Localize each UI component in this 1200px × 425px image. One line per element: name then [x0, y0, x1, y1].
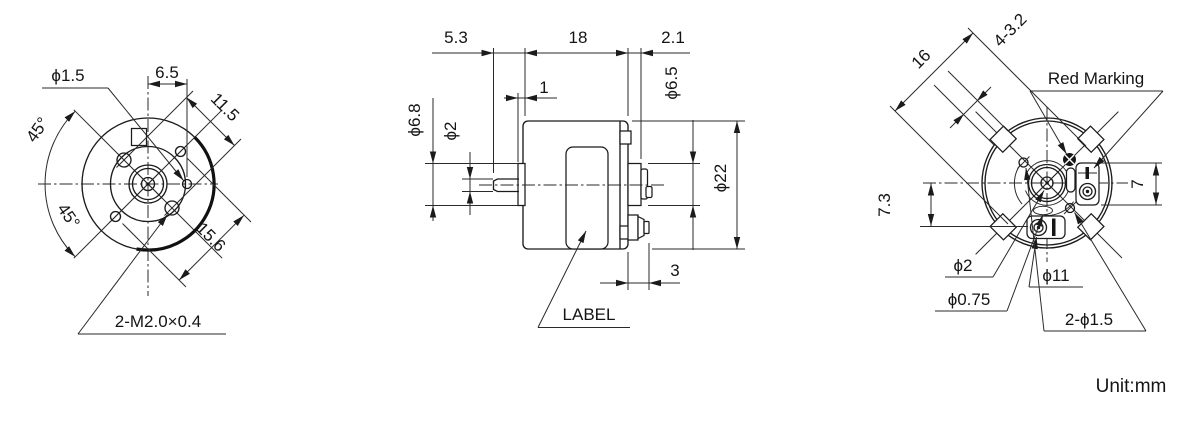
front-hole-dia-label: ϕ1.5 — [51, 66, 84, 85]
side-terminal-length-label: 3 — [670, 261, 679, 280]
motor-outline-drawing: ϕ1.5 6.5 11.5 45° 45° 15.6 2-M2.0×0.4 — [0, 0, 1200, 425]
label-band — [566, 147, 608, 249]
side-shaft-dia-label: ϕ2 — [441, 122, 460, 141]
side-label-note: LABEL — [563, 305, 616, 324]
vent-oval — [1067, 168, 1076, 192]
red-marking-dot — [1063, 153, 1076, 166]
rear-pinhole-dia-label: ϕ0.75 — [948, 290, 991, 309]
side-bushing-length-label: 1 — [539, 78, 548, 97]
side-shaft-length-label: 5.3 — [444, 28, 468, 47]
technical-drawing-svg: ϕ1.5 6.5 11.5 45° 45° 15.6 2-M2.0×0.4 — [0, 0, 1200, 425]
unit-note: Unit:mm — [1096, 376, 1167, 397]
side-body-dia-label: ϕ22 — [711, 164, 730, 192]
side-bushing-dia-label: ϕ6.8 — [405, 103, 424, 136]
side-body-length-label: 18 — [569, 28, 588, 47]
front-thread-label: 2-M2.0×0.4 — [115, 312, 201, 331]
side-boss-dia-label: ϕ6.5 — [662, 66, 681, 99]
rear-terminal-circle-label: ϕ11 — [1042, 266, 1069, 285]
rear-view: 16 4-3.2 Red Marking 7 7.3 ϕ2 ϕ0.75 ϕ11 … — [875, 10, 1163, 331]
front-hole-offset-label: 6.5 — [155, 63, 179, 82]
rear-marking-holes-label: 2-ϕ1.5 — [1065, 310, 1113, 329]
rear-red-marking-label: Red Marking — [1048, 69, 1144, 88]
front-hole-circle-label: 15.6 — [192, 219, 229, 256]
positive-terminal — [1076, 163, 1099, 205]
rear-slot-spec-label: 4-3.2 — [990, 10, 1031, 51]
rear-terminal-offset-label: 7.3 — [875, 193, 894, 217]
rear-terminal-height-label: 7 — [1128, 179, 1147, 188]
front-angle-upper-label: 45° — [22, 114, 52, 146]
pinhole-slot — [1034, 206, 1053, 214]
side-boss-length-label: 2.1 — [661, 28, 685, 47]
front-view: ϕ1.5 6.5 11.5 45° 45° 15.6 2-M2.0×0.4 — [22, 63, 251, 334]
side-view: 5.3 18 2.1 1 ϕ6.8 ϕ2 ϕ6.5 ϕ22 3 LABEL — [405, 28, 745, 328]
face-notch — [132, 129, 147, 146]
front-angle-lower-label: 45° — [53, 200, 83, 232]
terminal-side — [628, 215, 649, 240]
rear-shaft-end-dia-label: ϕ2 — [954, 256, 973, 275]
rear-slot-span-label: 16 — [908, 46, 935, 73]
